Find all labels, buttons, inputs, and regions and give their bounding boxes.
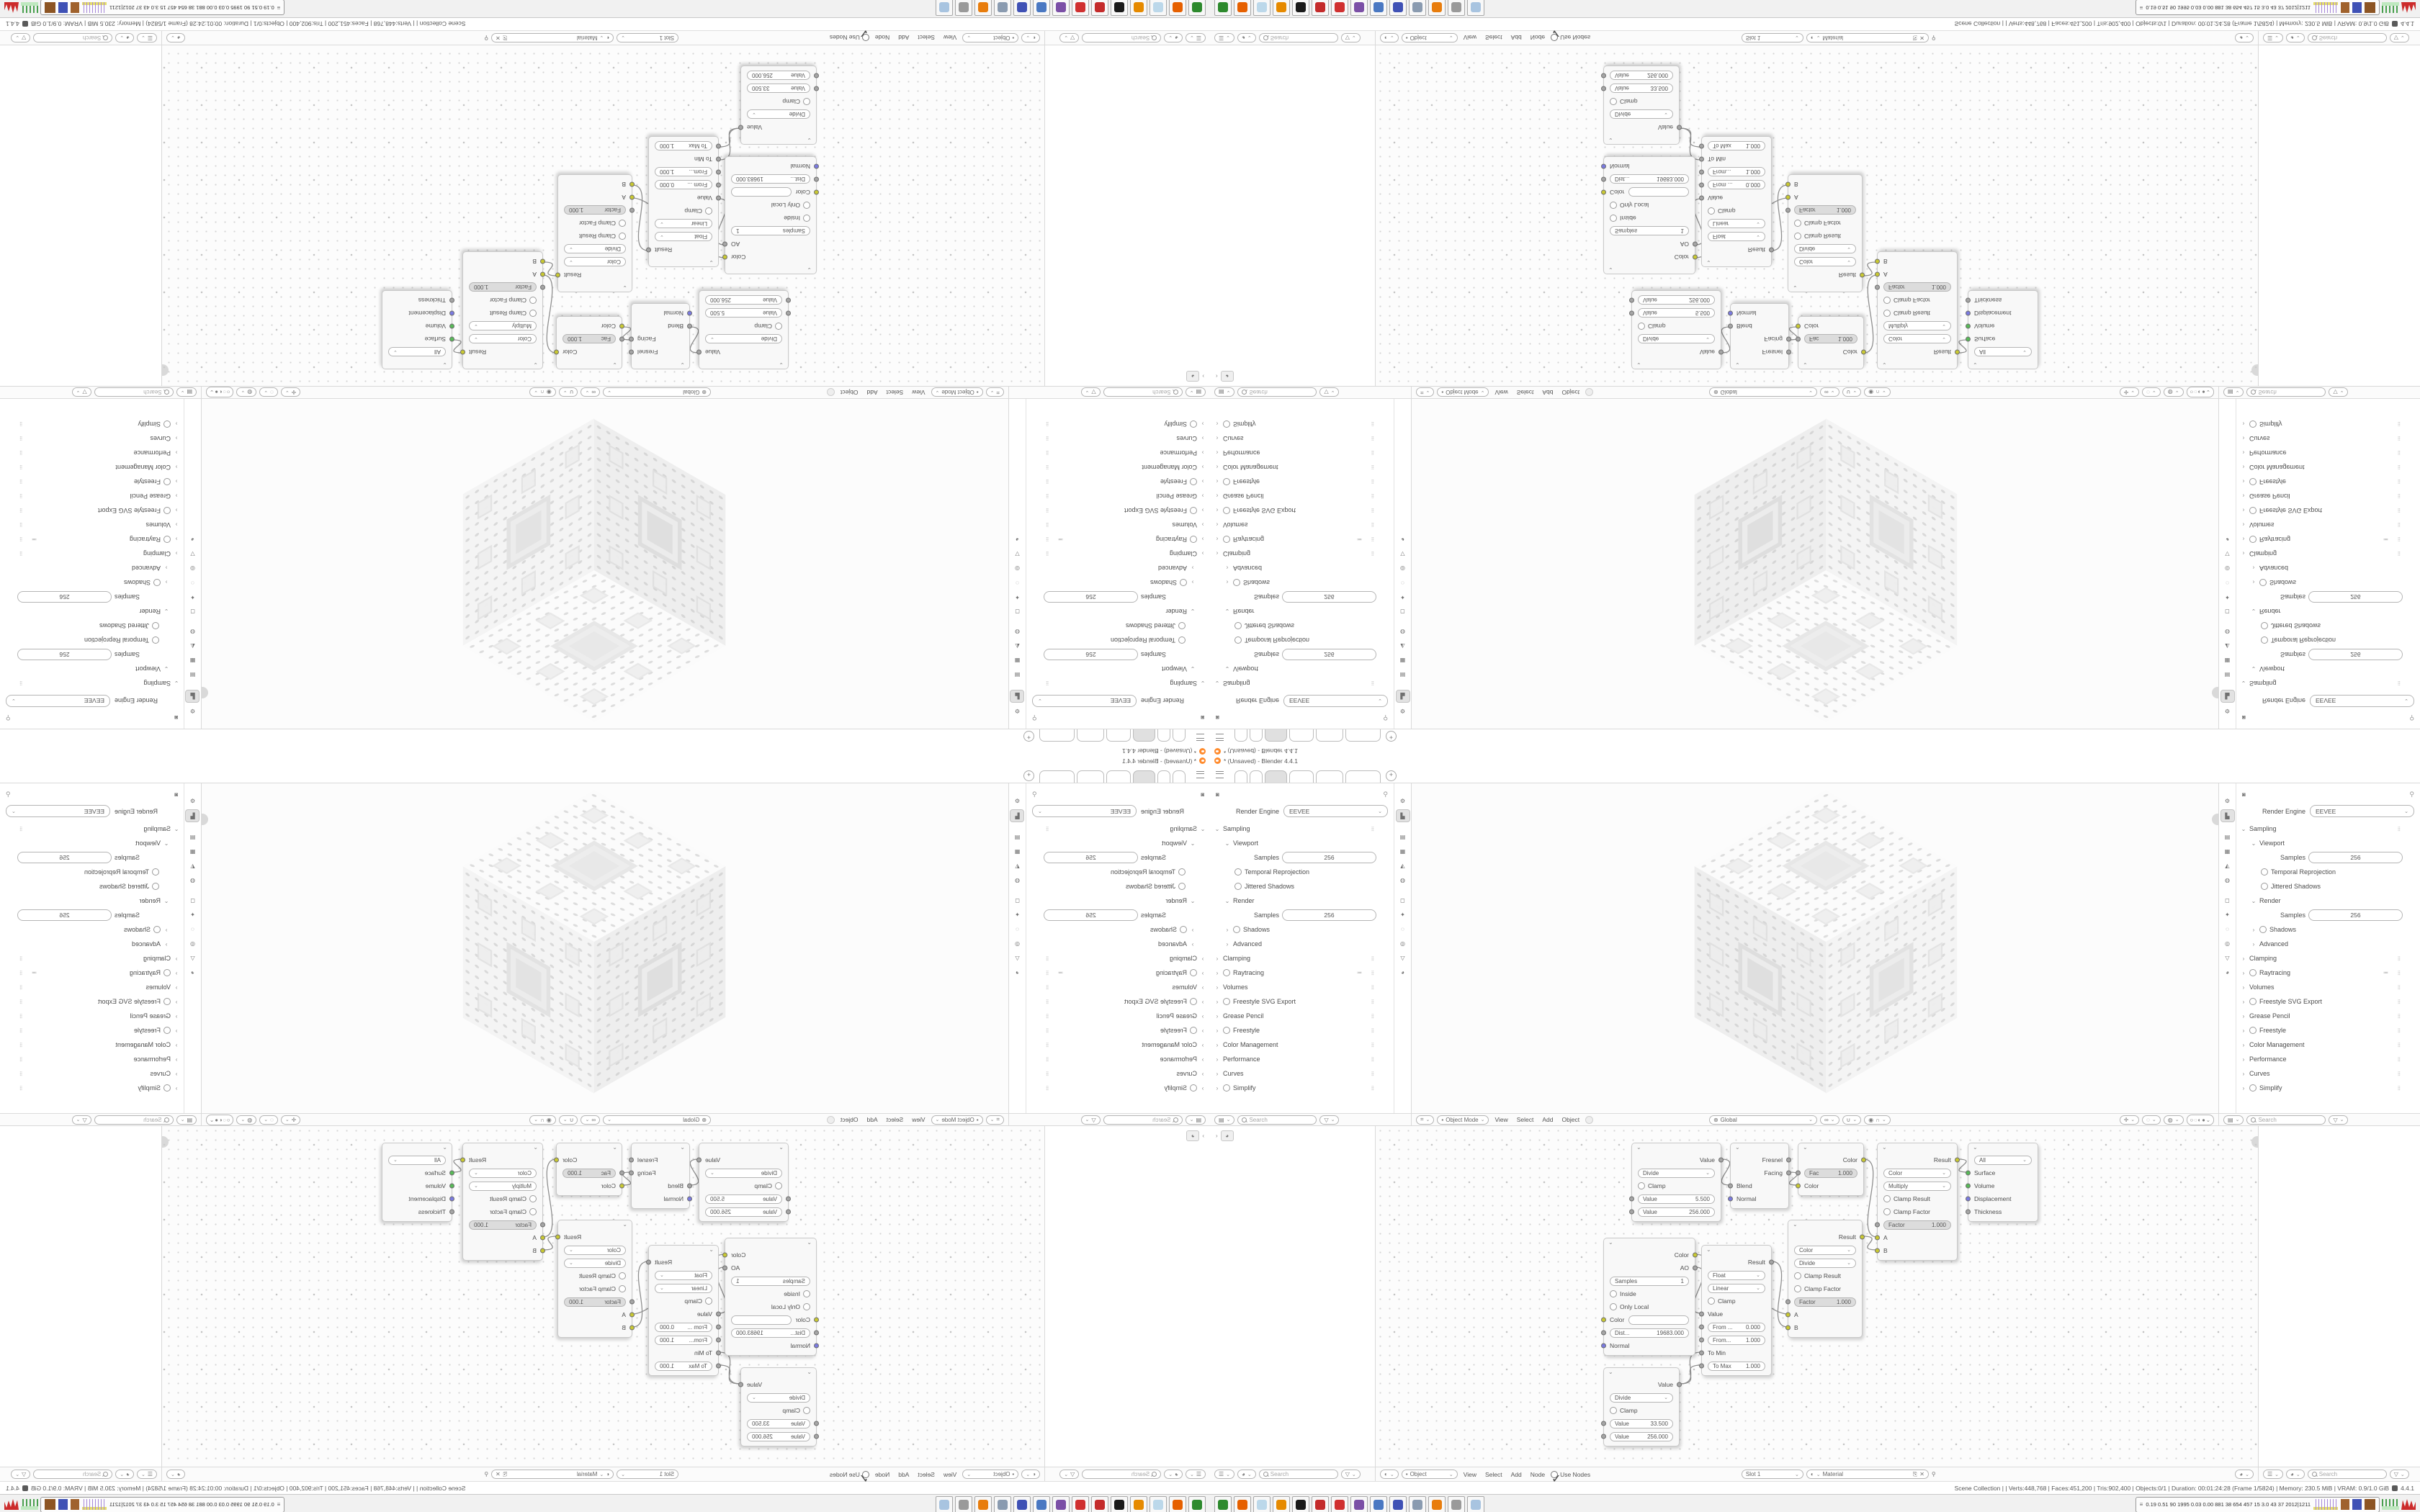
- math-divide-node-2[interactable]: ⌄ValueDivide⌄ClampValue33.500Value256.00…: [1603, 1367, 1680, 1446]
- mix-multiply-node-clamp-result[interactable]: Clamp Result: [1878, 307, 1957, 320]
- object-tab-icon[interactable]: ◻: [2221, 606, 2234, 618]
- outliner-materials-row[interactable]: › ◕: [1045, 371, 1210, 386]
- output-socket[interactable]: [1718, 350, 1724, 355]
- mix-multiply-node-clamp-result[interactable]: Clamp Result: [463, 1192, 542, 1205]
- mix-multiply-node-clamp-factor[interactable]: Clamp Factor: [463, 1205, 542, 1218]
- scene-tab-icon[interactable]: ◭: [1397, 641, 1410, 652]
- section-color-management[interactable]: ›Color Management⣿: [1026, 1038, 1210, 1052]
- mode-dropdown[interactable]: ▪Object Mode⌄: [1437, 388, 1489, 397]
- section-clamping[interactable]: ›Clamping⣿: [0, 546, 184, 561]
- material-tab-icon[interactable]: ◕: [1011, 534, 1024, 546]
- app-launcher-icon[interactable]: [1448, 1496, 1465, 1512]
- filter-button[interactable]: ▽⌄: [1059, 33, 1079, 42]
- section-color-management[interactable]: ›Color Management⣿: [0, 460, 184, 474]
- invert-color-node-fac[interactable]: Fac1.000: [1798, 333, 1863, 346]
- mode-dropdown[interactable]: ▪Object Mode⌄: [1437, 1115, 1489, 1125]
- app-launcher-icon[interactable]: [1448, 0, 1465, 17]
- input-socket[interactable]: [716, 1351, 721, 1356]
- collapse-icon[interactable]: ⌄: [1793, 1221, 1798, 1228]
- math-divide-node[interactable]: ⌄ValueDivide⌄ClampValue5.500Value256.000: [699, 1143, 789, 1222]
- input-socket[interactable]: [629, 182, 635, 187]
- object-tab-icon[interactable]: ◻: [1011, 894, 1024, 906]
- invert-color-node[interactable]: ⌄ColorFac1.000Color: [556, 316, 622, 369]
- section-volumes[interactable]: ›Volumes⣿: [1210, 518, 1394, 532]
- transform-orientation-dropdown[interactable]: ⊕Global⌄: [603, 388, 711, 397]
- input-socket[interactable]: [1785, 182, 1791, 187]
- menu-add[interactable]: Add: [864, 1116, 881, 1123]
- object-tab-icon[interactable]: ◻: [187, 894, 200, 906]
- object-tab-icon[interactable]: ◻: [1397, 894, 1410, 906]
- map-range-node-from-[interactable]: From ...0.000: [1702, 179, 1771, 192]
- collapse-icon[interactable]: ⌄: [807, 1239, 812, 1246]
- scene-tab-icon[interactable]: ◭: [1011, 860, 1024, 871]
- math-divide-node-value[interactable]: Value5.500: [699, 1192, 788, 1205]
- collapse-icon[interactable]: ⌄: [1706, 1246, 1711, 1253]
- search-input[interactable]: Search: [2308, 1470, 2387, 1479]
- section-shadows[interactable]: ›Shadows: [1026, 922, 1210, 937]
- scene-tab-icon[interactable]: ◭: [187, 860, 200, 871]
- section-sampling[interactable]: ⌄Sampling⣿: [1210, 676, 1394, 690]
- menu-object[interactable]: Object: [1559, 389, 1583, 396]
- menu-view[interactable]: View: [1492, 389, 1510, 396]
- xray-toggle-button[interactable]: ◍⌄: [236, 1115, 256, 1125]
- prop-jittered-shadows[interactable]: Jittered Shadows: [2236, 618, 2420, 633]
- input-socket[interactable]: [716, 1338, 721, 1343]
- workspace-tab[interactable]: [1289, 770, 1314, 783]
- menu-select[interactable]: Select: [1514, 389, 1537, 396]
- input-socket[interactable]: [687, 1197, 692, 1202]
- editor-type-button[interactable]: ▤⌄: [176, 1115, 197, 1125]
- app-launcher-icon[interactable]: [1253, 0, 1270, 17]
- invert-color-node[interactable]: ⌄ColorFac1.000Color: [556, 1143, 622, 1196]
- value-field[interactable]: 256: [1282, 909, 1376, 921]
- proportional-editing-button[interactable]: ◉∩⌄: [529, 1115, 556, 1125]
- output-socket[interactable]: [1769, 1260, 1774, 1265]
- section-freestyle-svg-export[interactable]: ›Freestyle SVG Export⣿: [1210, 503, 1394, 518]
- shading-mode-buttons[interactable]: ○◌◐●⌄: [206, 1115, 233, 1125]
- material-output-node[interactable]: ⌄All⌄SurfaceVolumeDisplacementThickness: [382, 290, 452, 369]
- search-input[interactable]: Search: [2246, 388, 2326, 397]
- transform-orientation-dropdown[interactable]: ⊕Global⌄: [603, 1115, 711, 1125]
- physics-tab-icon[interactable]: ◌: [2221, 923, 2234, 935]
- section-curves[interactable]: ›Curves⣿: [2236, 431, 2420, 446]
- section-viewport[interactable]: ⌄Viewport: [1210, 662, 1394, 676]
- render-engine-dropdown[interactable]: EEVEE⌄: [6, 695, 110, 707]
- pin-icon[interactable]: ⚲: [1383, 714, 1388, 722]
- display-mode-dropdown[interactable]: ☰⌄: [1186, 33, 1206, 42]
- mix-multiply-node-multiply[interactable]: Multiply⌄: [463, 1179, 542, 1192]
- display-mode-dropdown[interactable]: ☰⌄: [137, 33, 157, 42]
- mix-multiply-node-color[interactable]: Color⌄: [463, 1166, 542, 1179]
- output-socket[interactable]: [696, 1158, 702, 1163]
- section-raytracing[interactable]: ›Raytracing≔⣿: [2236, 966, 2420, 980]
- material-filter-dropdown[interactable]: ◕⌄: [1237, 1470, 1256, 1479]
- material-filter-dropdown[interactable]: ◕⌄: [1164, 1470, 1183, 1479]
- workspace-tab[interactable]: [1133, 770, 1155, 783]
- collapse-icon[interactable]: ⌄: [709, 1246, 714, 1253]
- app-launcher-icon[interactable]: [1428, 1496, 1446, 1512]
- input-socket[interactable]: [1629, 298, 1634, 303]
- search-input[interactable]: Search: [1103, 388, 1183, 397]
- section-freestyle-svg-export[interactable]: ›Freestyle SVG Export⣿: [2236, 503, 2420, 518]
- object-tab-icon[interactable]: ◻: [2221, 894, 2234, 906]
- ambient-occlusion-node-color[interactable]: Color: [725, 186, 816, 199]
- data-tab-icon[interactable]: ▽: [1011, 952, 1024, 963]
- section-freestyle[interactable]: ›Freestyle⣿: [1210, 1023, 1394, 1038]
- layer-weight-node[interactable]: ⌄FresnelFacingBlendNormal: [631, 1143, 690, 1209]
- prop-jittered-shadows[interactable]: Jittered Shadows: [1026, 879, 1210, 894]
- new-workspace-button[interactable]: +: [1386, 731, 1397, 742]
- section-grease-pencil[interactable]: ›Grease Pencil⣿: [1210, 489, 1394, 503]
- tool-tab-icon[interactable]: ⚙: [187, 706, 200, 717]
- menu-add[interactable]: Add: [1508, 1471, 1525, 1478]
- output-tab-icon[interactable]: ▤: [187, 670, 200, 681]
- menu-add[interactable]: Add: [1508, 35, 1525, 42]
- mix-divide-node[interactable]: ⌄ResultColor⌄Divide⌄Clamp ResultClamp Fa…: [1788, 174, 1863, 292]
- app-launcher-icon[interactable]: [1409, 0, 1426, 17]
- app-launcher-icon[interactable]: [1033, 0, 1050, 17]
- render-tab-icon[interactable]: ▙: [2220, 690, 2235, 703]
- mix-multiply-node-clamp-factor[interactable]: Clamp Factor: [1878, 1205, 1957, 1218]
- section-curves[interactable]: ›Curves⣿: [1026, 1066, 1210, 1081]
- map-range-node-clamp[interactable]: Clamp: [1702, 1295, 1771, 1308]
- math-divide-node-2-clamp[interactable]: Clamp: [741, 95, 816, 108]
- app-launcher-icon[interactable]: [1253, 1496, 1270, 1512]
- input-socket[interactable]: [1699, 196, 1704, 201]
- mix-divide-node-clamp-result[interactable]: Clamp Result: [558, 1269, 632, 1282]
- input-socket[interactable]: [540, 272, 545, 277]
- section-volumes[interactable]: ›Volumes⣿: [1026, 518, 1210, 532]
- input-socket[interactable]: [1785, 195, 1791, 200]
- input-socket[interactable]: [786, 311, 791, 316]
- world-tab-icon[interactable]: ◍: [2221, 874, 2234, 886]
- section-performance[interactable]: ›Performance⣿: [1026, 1052, 1210, 1066]
- collapse-icon[interactable]: ⌄: [1882, 1144, 1887, 1151]
- modifiers-tab-icon[interactable]: ✦: [1011, 592, 1024, 603]
- mix-multiply-node-multiply[interactable]: Multiply⌄: [1878, 320, 1957, 333]
- math-divide-node-2-divide[interactable]: Divide⌄: [741, 1391, 816, 1404]
- search-input[interactable]: Search: [33, 1470, 112, 1479]
- math-divide-node-2-clamp[interactable]: Clamp: [1604, 95, 1679, 108]
- editor-type-button[interactable]: ⌗⌄: [986, 388, 1004, 397]
- world-tab-icon[interactable]: ◍: [1011, 626, 1024, 638]
- value-field[interactable]: 256: [1044, 591, 1138, 603]
- shader-type-dropdown[interactable]: ▪Object⌄: [962, 33, 1018, 42]
- app-launcher-icon[interactable]: [955, 0, 972, 17]
- app-launcher-icon[interactable]: [1013, 1496, 1031, 1512]
- proportional-editing-button[interactable]: ◉∩⌄: [1864, 1115, 1891, 1125]
- section-grease-pencil[interactable]: ›Grease Pencil⣿: [0, 1009, 184, 1023]
- input-socket[interactable]: [629, 1326, 635, 1331]
- mix-divide-node-clamp-factor[interactable]: Clamp Factor: [1788, 217, 1862, 230]
- math-divide-node-2[interactable]: ⌄ValueDivide⌄ClampValue33.500Value256.00…: [740, 66, 817, 145]
- math-divide-node-2[interactable]: ⌄ValueDivide⌄ClampValue33.500Value256.00…: [1603, 66, 1680, 145]
- output-socket[interactable]: [646, 248, 651, 253]
- viewport-canvas[interactable]: [1412, 783, 2218, 1113]
- prop-temporal-reprojection[interactable]: Temporal Reprojection: [0, 633, 184, 647]
- prop-jittered-shadows[interactable]: Jittered Shadows: [2236, 879, 2420, 894]
- editor-type-button[interactable]: ◐⌄: [1380, 1470, 1399, 1479]
- section-color-management[interactable]: ›Color Management⣿: [0, 1038, 184, 1052]
- material-datablock[interactable]: ◐⌄Material⎘✕: [1806, 33, 1929, 42]
- render-engine-dropdown[interactable]: EEVEE⌄: [6, 805, 110, 817]
- input-socket[interactable]: [1875, 285, 1880, 290]
- section-grease-pencil[interactable]: ›Grease Pencil⣿: [2236, 1009, 2420, 1023]
- ambient-occlusion-node[interactable]: ⌄ColorAOSamples1InsideOnly LocalColorDis…: [725, 156, 817, 274]
- output-socket[interactable]: [1693, 242, 1698, 247]
- constraints-tab-icon[interactable]: ◎: [2221, 563, 2234, 575]
- object-tab-icon[interactable]: ◻: [1397, 606, 1410, 618]
- input-socket[interactable]: [540, 259, 545, 264]
- input-socket[interactable]: [449, 1210, 454, 1215]
- input-socket[interactable]: [1601, 164, 1606, 169]
- section-curves[interactable]: ›Curves⣿: [0, 1066, 184, 1081]
- editor-type-button[interactable]: ⌗⌄: [1416, 388, 1434, 397]
- input-socket[interactable]: [1699, 170, 1704, 175]
- input-socket[interactable]: [814, 1344, 819, 1349]
- app-launcher-icon[interactable]: [1111, 1496, 1128, 1512]
- collapse-icon[interactable]: ⌄: [807, 1369, 812, 1375]
- output-socket[interactable]: [722, 1253, 727, 1258]
- value-field[interactable]: 256: [2308, 591, 2403, 603]
- app-launcher-icon[interactable]: [1370, 1496, 1387, 1512]
- menu-add[interactable]: Add: [1539, 1116, 1556, 1123]
- prop-temporal-reprojection[interactable]: Temporal Reprojection: [1210, 865, 1394, 879]
- workspace-tab[interactable]: [1133, 729, 1155, 742]
- search-input[interactable]: Search: [1237, 1115, 1317, 1125]
- outliner-materials-row[interactable]: › ◕: [1210, 1126, 1375, 1141]
- menu-object[interactable]: Object: [1559, 1116, 1583, 1123]
- material-filter-dropdown[interactable]: ◕⌄: [1164, 33, 1183, 42]
- math-divide-node-2[interactable]: ⌄ValueDivide⌄ClampValue33.500Value256.00…: [740, 1367, 817, 1446]
- shader-type-dropdown[interactable]: ▪Object⌄: [1402, 33, 1458, 42]
- app-launcher-icon[interactable]: [1331, 0, 1348, 17]
- gizmo-toggle-button[interactable]: ✛⌄: [281, 388, 301, 397]
- collapse-icon[interactable]: ⌄: [533, 1144, 538, 1151]
- collapse-icon[interactable]: ⌄: [1608, 1239, 1613, 1246]
- section-freestyle-svg-export[interactable]: ›Freestyle SVG Export⣿: [2236, 994, 2420, 1009]
- section-advanced[interactable]: ›Advanced: [1026, 937, 1210, 951]
- gizmo-toggle-button[interactable]: ✛⌄: [2120, 388, 2140, 397]
- app-launcher-icon[interactable]: [1130, 0, 1147, 17]
- output-socket[interactable]: [1786, 350, 1791, 355]
- render-engine-dropdown[interactable]: EEVEE⌄: [1283, 805, 1388, 817]
- overlays-toggle-button[interactable]: ◌⌄: [2142, 388, 2161, 397]
- section-render[interactable]: ⌄Render: [1026, 604, 1210, 618]
- new-workspace-button[interactable]: +: [1023, 731, 1034, 742]
- material-datablock[interactable]: ◐⌄Material⎘✕: [491, 33, 614, 42]
- section-raytracing[interactable]: ›Raytracing≔⣿: [1026, 532, 1210, 546]
- invert-color-node-fac[interactable]: Fac1.000: [557, 1166, 622, 1179]
- value-field[interactable]: 256: [17, 852, 112, 863]
- shading-mode-buttons[interactable]: ○◌◐●⌄: [2187, 387, 2214, 398]
- pin-icon[interactable]: ⚲: [484, 35, 488, 41]
- menu-select[interactable]: Select: [915, 35, 938, 42]
- prop-temporal-reprojection[interactable]: Temporal Reprojection: [1210, 633, 1394, 647]
- collapse-icon[interactable]: ⌄: [1735, 361, 1740, 368]
- input-socket[interactable]: [449, 1184, 454, 1189]
- data-tab-icon[interactable]: ▽: [187, 952, 200, 963]
- overlays-toggle-button[interactable]: ◌⌄: [259, 1115, 278, 1125]
- prop-samples[interactable]: Samples256: [2236, 908, 2420, 922]
- menu-view[interactable]: View: [1492, 1116, 1510, 1123]
- app-launcher-icon[interactable]: [1169, 0, 1186, 17]
- value-field[interactable]: 256: [1044, 852, 1138, 863]
- prop-samples[interactable]: Samples256: [1210, 647, 1394, 662]
- collapse-icon[interactable]: ⌄: [1803, 361, 1808, 368]
- section-advanced[interactable]: ›Advanced: [2236, 937, 2420, 951]
- modifiers-tab-icon[interactable]: ✦: [187, 909, 200, 920]
- render-engine-dropdown[interactable]: EEVEE⌄: [2310, 695, 2414, 707]
- material-output-node-all[interactable]: All⌄: [1968, 1153, 2038, 1166]
- collapse-icon[interactable]: ⌄: [1735, 1144, 1740, 1151]
- menu-object[interactable]: Object: [838, 1116, 861, 1123]
- mix-multiply-node-factor[interactable]: Factor1.000: [463, 281, 542, 294]
- section-grease-pencil[interactable]: ›Grease Pencil⣿: [2236, 489, 2420, 503]
- app-launcher-icon[interactable]: [1312, 0, 1329, 17]
- app-launcher-icon[interactable]: [1292, 1496, 1309, 1512]
- display-mode-dropdown[interactable]: ☰⌄: [1214, 33, 1234, 42]
- app-launcher-icon[interactable]: [974, 1496, 992, 1512]
- mode-dropdown[interactable]: ▪Object Mode⌄: [931, 388, 983, 397]
- mix-multiply-node-clamp-factor[interactable]: Clamp Factor: [463, 294, 542, 307]
- snap-magnet-button[interactable]: ∪⌄: [559, 1115, 578, 1125]
- mix-multiply-node-factor[interactable]: Factor1.000: [1878, 1218, 1957, 1231]
- app-launcher-icon[interactable]: [1130, 1496, 1147, 1512]
- world-tab-icon[interactable]: ◍: [2221, 626, 2234, 638]
- input-socket[interactable]: [1728, 324, 1733, 329]
- section-performance[interactable]: ›Performance⣿: [1210, 1052, 1394, 1066]
- modifiers-tab-icon[interactable]: ✦: [2221, 592, 2234, 603]
- prop-samples[interactable]: Samples256: [1026, 908, 1210, 922]
- prop-temporal-reprojection[interactable]: Temporal Reprojection: [2236, 865, 2420, 879]
- material-tab-icon[interactable]: ◕: [1011, 966, 1024, 978]
- app-launcher-icon[interactable]: [1188, 1496, 1206, 1512]
- material-datablock[interactable]: ◐⌄Material⎘✕: [491, 1470, 614, 1479]
- output-socket[interactable]: [555, 273, 560, 278]
- map-range-node-linear[interactable]: Linear⌄: [1702, 217, 1771, 230]
- input-socket[interactable]: [716, 144, 721, 149]
- menu-view[interactable]: View: [941, 1471, 959, 1478]
- input-socket[interactable]: [1728, 311, 1733, 316]
- mix-divide-node[interactable]: ⌄ResultColor⌄Divide⌄Clamp ResultClamp Fa…: [1788, 1220, 1863, 1338]
- collapse-icon[interactable]: ⌄: [1706, 259, 1711, 266]
- search-input[interactable]: Search: [1237, 388, 1317, 397]
- math-divide-node[interactable]: ⌄ValueDivide⌄ClampValue5.500Value256.000: [699, 290, 789, 369]
- scene-tab-icon[interactable]: ◭: [1011, 641, 1024, 652]
- search-input[interactable]: Search: [94, 388, 174, 397]
- section-performance[interactable]: ›Performance⣿: [0, 1052, 184, 1066]
- mix-multiply-node-multiply[interactable]: Multiply⌄: [1878, 1179, 1957, 1192]
- app-launcher-icon[interactable]: [936, 0, 953, 17]
- hamburger-menu-icon[interactable]: [1216, 734, 1224, 741]
- workspace-tab[interactable]: [1077, 770, 1104, 783]
- display-mode-dropdown[interactable]: ☰⌄: [2263, 1470, 2283, 1479]
- render-tab-icon[interactable]: ▙: [1396, 690, 1410, 703]
- viewport-canvas[interactable]: [1412, 399, 2218, 729]
- display-mode-dropdown[interactable]: ☰⌄: [1186, 1470, 1206, 1479]
- section-render[interactable]: ⌄Render: [2236, 894, 2420, 908]
- search-input[interactable]: Search: [1082, 1470, 1161, 1479]
- input-socket[interactable]: [814, 73, 819, 78]
- output-socket[interactable]: [629, 337, 634, 342]
- view-layer-tab-icon[interactable]: ▦: [2221, 845, 2234, 857]
- data-tab-icon[interactable]: ▽: [2221, 549, 2234, 560]
- new-workspace-button[interactable]: +: [1386, 770, 1397, 781]
- node-canvas[interactable]: ⌄ValueDivide⌄ClampValue5.500Value256.000…: [1376, 45, 2258, 386]
- value-field[interactable]: 256: [2308, 649, 2403, 660]
- input-socket[interactable]: [1601, 1344, 1606, 1349]
- view-layer-tab-icon[interactable]: ▦: [187, 655, 200, 667]
- input-socket[interactable]: [1601, 1331, 1606, 1336]
- input-socket[interactable]: [1796, 324, 1801, 329]
- section-sampling[interactable]: ⌄Sampling⣿: [1210, 822, 1394, 836]
- prop-samples[interactable]: Samples256: [1026, 647, 1210, 662]
- input-socket[interactable]: [629, 208, 635, 213]
- input-socket[interactable]: [786, 1197, 791, 1202]
- constraints-tab-icon[interactable]: ◎: [187, 563, 200, 575]
- section-freestyle-svg-export[interactable]: ›Freestyle SVG Export⣿: [0, 994, 184, 1009]
- render-tab-icon[interactable]: ▙: [186, 809, 200, 822]
- input-socket[interactable]: [814, 1421, 819, 1426]
- map-range-node-clamp[interactable]: Clamp: [649, 204, 718, 217]
- input-socket[interactable]: [1699, 144, 1704, 149]
- material-tab-icon[interactable]: ◕: [1397, 534, 1410, 546]
- mix-multiply-node-color[interactable]: Color⌄: [1878, 1166, 1957, 1179]
- collapse-icon[interactable]: ⌄: [1636, 1144, 1641, 1151]
- app-launcher-icon[interactable]: [1428, 0, 1446, 17]
- map-range-node-clamp[interactable]: Clamp: [649, 1295, 718, 1308]
- input-socket[interactable]: [1875, 259, 1880, 264]
- physics-tab-icon[interactable]: ◌: [2221, 577, 2234, 589]
- physics-tab-icon[interactable]: ◌: [1011, 923, 1024, 935]
- math-divide-node-2-value[interactable]: Value33.500: [1604, 82, 1679, 95]
- hamburger-menu-icon[interactable]: [1216, 771, 1224, 778]
- input-socket[interactable]: [629, 1300, 635, 1305]
- section-curves[interactable]: ›Curves⣿: [2236, 1066, 2420, 1081]
- section-curves[interactable]: ›Curves⣿: [1210, 1066, 1394, 1081]
- app-launcher-icon[interactable]: [1091, 1496, 1108, 1512]
- math-divide-node-value[interactable]: Value256.000: [1632, 1205, 1721, 1218]
- app-launcher-icon[interactable]: [1033, 1496, 1050, 1512]
- shader-type-dropdown[interactable]: ▪Object⌄: [962, 1470, 1018, 1479]
- section-simplify[interactable]: ›Simplify⣿: [1026, 1081, 1210, 1095]
- output-socket[interactable]: [1718, 1158, 1724, 1163]
- filter-button[interactable]: ▽⌄: [72, 1115, 91, 1125]
- view-layer-tab-icon[interactable]: ▦: [1011, 845, 1024, 857]
- input-socket[interactable]: [449, 311, 454, 316]
- output-socket[interactable]: [1955, 1158, 1960, 1163]
- input-socket[interactable]: [619, 324, 624, 329]
- view-layer-tab-icon[interactable]: ▦: [187, 845, 200, 857]
- filter-button[interactable]: ▽⌄: [2390, 33, 2409, 42]
- material-output-node-all[interactable]: All⌄: [1968, 346, 2038, 359]
- menu-select[interactable]: Select: [1514, 1116, 1537, 1123]
- workspace-tab[interactable]: [1039, 770, 1075, 783]
- viewport-3d[interactable]: ⌗⌄ ▪Object Mode⌄ View Select Add Object …: [1412, 783, 2218, 1125]
- tool-tab-icon[interactable]: ⚙: [1397, 795, 1410, 806]
- app-launcher-icon[interactable]: [1234, 0, 1251, 17]
- tool-tab-icon[interactable]: ⚙: [2221, 706, 2234, 717]
- filter-button[interactable]: ▽⌄: [1059, 1470, 1079, 1479]
- input-socket[interactable]: [1699, 1364, 1704, 1369]
- section-performance[interactable]: ›Performance⣿: [1210, 446, 1394, 460]
- map-range-node[interactable]: ⌄ResultFloat⌄Linear⌄ClampValueFrom ...0.…: [648, 136, 719, 267]
- collapse-icon[interactable]: ⌄: [1973, 1144, 1978, 1151]
- section-render[interactable]: ⌄Render: [1026, 894, 1210, 908]
- collapse-icon[interactable]: ⌄: [533, 361, 538, 368]
- section-advanced[interactable]: ›Advanced: [0, 561, 184, 575]
